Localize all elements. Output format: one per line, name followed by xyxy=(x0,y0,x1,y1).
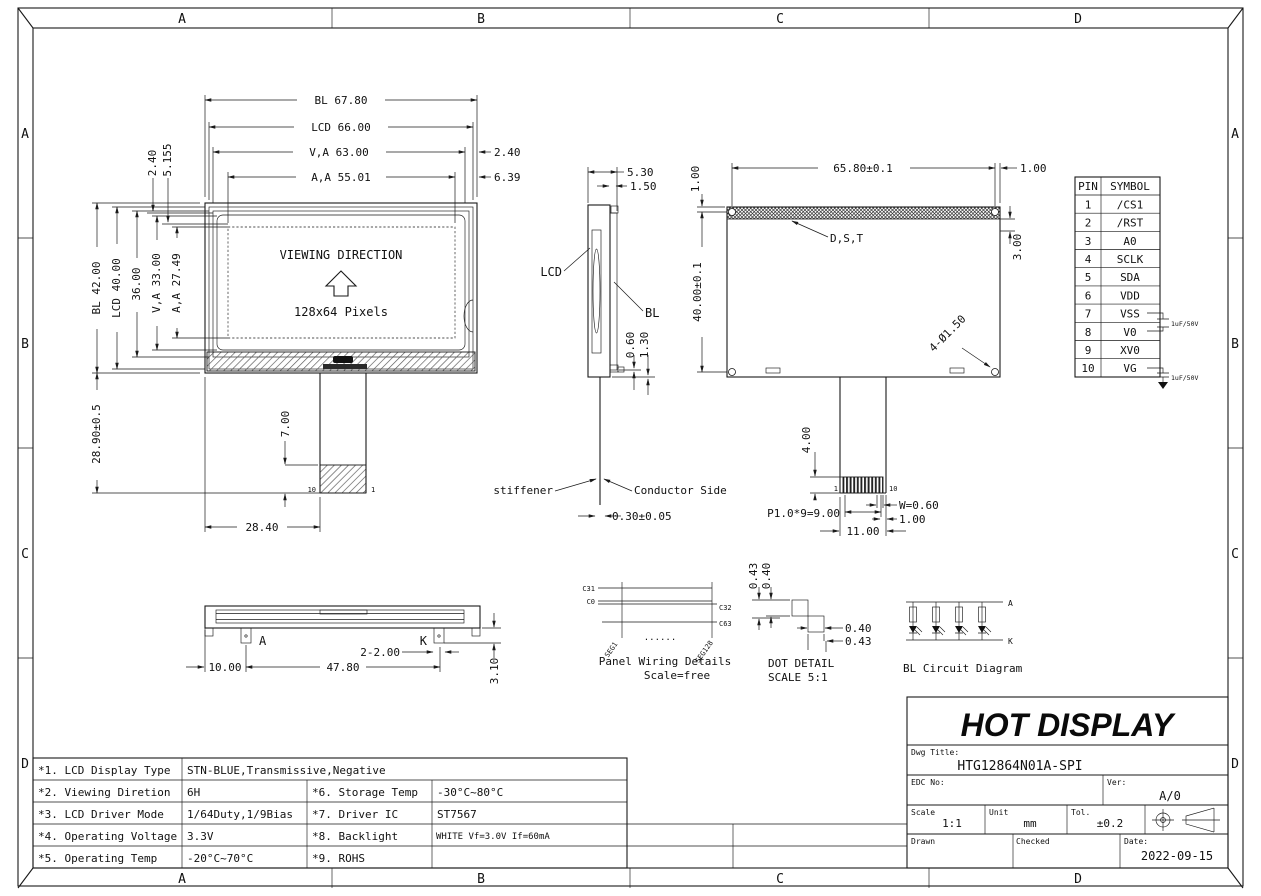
anode-label: A xyxy=(259,634,267,648)
svg-text:6: 6 xyxy=(1085,289,1092,302)
svg-text:VG: VG xyxy=(1123,362,1136,375)
dim-lcd-height: LCD 40.00 xyxy=(110,258,123,318)
tol-value: ±0.2 xyxy=(1097,817,1124,830)
dim-lcd-width: LCD 66.00 xyxy=(311,121,371,134)
company-logo-text: HOT DISPLAY xyxy=(961,707,1176,743)
dim-150: 1.50 xyxy=(630,180,657,193)
lcd-callout: LCD xyxy=(540,265,562,279)
border-letter-right-b: B xyxy=(1231,337,1239,352)
bl-circuit-title: BL Circuit Diagram xyxy=(903,662,1023,675)
svg-text:*3. LCD Driver Mode: *3. LCD Driver Mode xyxy=(38,808,164,821)
drawing-sheet: A B C D A B C D A B C D A B C D VIEWING … xyxy=(0,0,1261,896)
pin-table-header-symbol: SYMBOL xyxy=(1110,180,1150,193)
scale-label: Scale xyxy=(911,808,935,817)
wiring-c32-label: C32 xyxy=(719,604,732,612)
dim-w060: W=0.60 xyxy=(899,499,939,512)
svg-text:5: 5 xyxy=(1085,271,1092,284)
dim-4780: 47.80 xyxy=(326,661,359,674)
dst-callout: D,S,T xyxy=(830,232,863,245)
dwg-title-value: HTG12864N01A-SPI xyxy=(957,759,1082,774)
front-view: VIEWING DIRECTION 128x64 Pixels 10 1 BL … xyxy=(90,93,521,534)
svg-text:3.3V: 3.3V xyxy=(187,830,214,843)
bl-anode-label: A xyxy=(1008,599,1013,608)
svg-text:10: 10 xyxy=(1081,362,1094,375)
border-letter-left-c: C xyxy=(21,547,29,562)
dim-6580: 65.80±0.1 xyxy=(833,162,893,175)
dim-bl-width: BL 67.80 xyxy=(315,94,368,107)
dim-300: 3.00 xyxy=(1011,234,1024,261)
svg-text:*1. LCD Display Type: *1. LCD Display Type xyxy=(38,764,170,777)
border-letter-bottom-a: A xyxy=(178,872,186,887)
border-letter-top-d: D xyxy=(1074,12,1082,27)
dim-4000: 40.00±0.1 xyxy=(691,262,704,322)
svg-text:WHITE Vf=3.0V If=60mA: WHITE Vf=3.0V If=60mA xyxy=(436,832,550,842)
dim-va-width: V,A 63.00 xyxy=(309,146,369,159)
engineering-drawing: A B C D A B C D A B C D A B C D VIEWING … xyxy=(0,0,1261,896)
dim-2200: 2-2.00 xyxy=(360,646,400,659)
panel-wiring-scale: Scale=free xyxy=(644,669,710,682)
dim-100-top-right: 1.00 xyxy=(1020,162,1047,175)
pixels-label: 128x64 Pixels xyxy=(294,305,388,319)
pin-table: PIN SYMBOL 1/CS1 2/RST 3A0 4SCLK 5SDA 6V… xyxy=(1075,177,1198,389)
dim-240-right: 2.40 xyxy=(494,146,521,159)
svg-text:*2. Viewing Diretion: *2. Viewing Diretion xyxy=(38,786,170,799)
border-letter-left-d: D xyxy=(21,757,29,772)
dim-5155: 5.155 xyxy=(161,143,174,176)
sheet-frame: A B C D A B C D A B C D A B C D xyxy=(18,8,1243,888)
unit-value: mm xyxy=(1023,817,1037,830)
svg-text:/CS1: /CS1 xyxy=(1117,199,1144,212)
dim-530: 5.30 xyxy=(627,166,654,179)
side-view: 5.30 1.50 LCD BL 0.60 1.30 stiffener Con… xyxy=(493,166,726,523)
border-letter-top-a: A xyxy=(178,12,186,27)
border-letter-right-c: C xyxy=(1231,547,1239,562)
svg-text:VSS: VSS xyxy=(1120,308,1140,321)
fpc-pin1-label: 1 xyxy=(371,486,375,494)
dim-2890: 28.90±0.5 xyxy=(90,404,103,464)
dim-1100: 11.00 xyxy=(846,525,879,538)
conductor-side-callout: Conductor Side xyxy=(634,484,727,497)
unit-label: Unit xyxy=(989,808,1008,817)
stiffener-callout: stiffener xyxy=(493,484,553,497)
rear-pin10-label: 10 xyxy=(889,485,897,493)
dim-130: 1.30 xyxy=(638,332,651,359)
border-letter-right-a: A xyxy=(1231,127,1239,142)
dot-dim-040-h: 0.40 xyxy=(845,622,872,635)
wiring-c31-label: C31 xyxy=(582,585,595,593)
border-letter-left-b: B xyxy=(21,337,29,352)
svg-text:*6. Storage Temp: *6. Storage Temp xyxy=(312,786,418,799)
ver-label: Ver: xyxy=(1107,778,1126,787)
svg-text:1uF/50V: 1uF/50V xyxy=(1171,320,1198,328)
svg-text:VDD: VDD xyxy=(1120,289,1140,302)
wiring-c0-label: C0 xyxy=(587,598,595,606)
dot-detail: 0.43 0.40 0.40 0.43 DOT DETAIL SCALE 5:1 xyxy=(747,563,872,684)
cathode-label: K xyxy=(420,634,428,648)
date-label: Date: xyxy=(1124,837,1148,846)
ver-value: A/0 xyxy=(1159,789,1181,803)
border-letter-right-d: D xyxy=(1231,757,1239,772)
dim-310: 3.10 xyxy=(488,658,501,685)
dot-dim-043-v: 0.43 xyxy=(747,563,760,590)
svg-text:1: 1 xyxy=(1085,199,1092,212)
rear-pin1-label: 1 xyxy=(834,485,838,493)
svg-text:-30°C~80°C: -30°C~80°C xyxy=(437,786,503,799)
svg-text:1/64Duty,1/9Bias: 1/64Duty,1/9Bias xyxy=(187,808,293,821)
svg-text:SDA: SDA xyxy=(1120,271,1140,284)
pin-table-rows: 1/CS1 2/RST 3A0 4SCLK 5SDA 6VDD 7VSS 8V0… xyxy=(1081,199,1143,376)
svg-text:-20°C~70°C: -20°C~70°C xyxy=(187,852,253,865)
viewing-direction-arrow-icon xyxy=(326,271,356,296)
panel-wiring-details: C31 C0 C32 C63 SEG1 SEG128 ...... Panel … xyxy=(582,582,731,682)
pin-table-header-pin: PIN xyxy=(1078,180,1098,193)
bl-cathode-label: K xyxy=(1008,637,1013,646)
dot-dim-040-v: 0.40 xyxy=(760,563,773,590)
edc-no-label: EDC No: xyxy=(911,778,945,787)
svg-text:4: 4 xyxy=(1085,253,1092,266)
spec-row-4: *4. Operating Voltage 3.3V *8. Backlight… xyxy=(38,830,550,843)
capacitor-vg: 1uF/50V xyxy=(1147,368,1198,389)
spec-table: *1. LCD Display Type STN-BLUE,Transmissi… xyxy=(33,758,907,868)
dot-detail-scale: SCALE 5:1 xyxy=(768,671,828,684)
dim-2840: 28.40 xyxy=(245,521,278,534)
dim-aa-height: A,A 27.49 xyxy=(170,253,183,313)
dim-pitch: P1.0*9=9.00 xyxy=(767,507,840,520)
svg-text:/RST: /RST xyxy=(1117,217,1144,230)
svg-text:*5. Operating Temp: *5. Operating Temp xyxy=(38,852,157,865)
svg-text:*4. Operating Voltage: *4. Operating Voltage xyxy=(38,830,177,843)
dim-va-height: V,A 33.00 xyxy=(150,253,163,313)
scale-value: 1:1 xyxy=(942,817,962,830)
svg-text:3: 3 xyxy=(1085,235,1092,248)
border-letter-top-b: B xyxy=(477,12,485,27)
tol-label: Tol. xyxy=(1071,808,1090,817)
dim-240-top: 2.40 xyxy=(146,150,159,177)
svg-text:*8. Backlight: *8. Backlight xyxy=(312,830,398,843)
wiring-c63-label: C63 xyxy=(719,620,732,628)
dim-060: 0.60 xyxy=(624,332,637,359)
viewing-direction-label: VIEWING DIRECTION xyxy=(280,248,403,262)
svg-text:8: 8 xyxy=(1085,326,1092,339)
bottom-view: A K 10.00 47.80 2-2.00 3.10 xyxy=(186,606,501,684)
date-value: 2022-09-15 xyxy=(1141,849,1213,863)
dim-100-bottom: 1.00 xyxy=(899,513,926,526)
dim-1000: 10.00 xyxy=(208,661,241,674)
bl-circuit-diagram: A K BL Circuit Diagram xyxy=(903,599,1023,675)
svg-text:ST7567: ST7567 xyxy=(437,808,477,821)
bl-callout: BL xyxy=(645,306,659,320)
dot-dim-043-h: 0.43 xyxy=(845,635,872,648)
dim-aa-width: A,A 55.01 xyxy=(311,171,371,184)
border-letter-left-a: A xyxy=(21,127,29,142)
svg-text:2: 2 xyxy=(1085,217,1092,230)
border-letter-bottom-d: D xyxy=(1074,872,1082,887)
spec-row-3: *3. LCD Driver Mode 1/64Duty,1/9Bias *7.… xyxy=(38,808,477,821)
svg-text:*9. ROHS: *9. ROHS xyxy=(312,852,365,865)
svg-text:SCLK: SCLK xyxy=(1117,253,1144,266)
dim-700: 7.00 xyxy=(279,411,292,438)
dim-639: 6.39 xyxy=(494,171,521,184)
drawn-label: Drawn xyxy=(911,837,935,846)
dim-36: 36.00 xyxy=(130,267,143,300)
dwg-title-label: Dwg Title: xyxy=(911,748,959,757)
dim-400: 4.00 xyxy=(800,427,813,454)
dot-detail-title: DOT DETAIL xyxy=(768,657,835,670)
svg-text:1uF/50V: 1uF/50V xyxy=(1171,374,1198,382)
svg-text:A0: A0 xyxy=(1123,235,1136,248)
dim-030: 0.30±0.05 xyxy=(612,510,672,523)
svg-text:STN-BLUE,Transmissive,Negative: STN-BLUE,Transmissive,Negative xyxy=(187,764,386,777)
title-block: HOT DISPLAY Dwg Title: HTG12864N01A-SPI … xyxy=(907,697,1228,868)
panel-wiring-title: Panel Wiring Details xyxy=(599,655,731,668)
spec-row-2: *2. Viewing Diretion 6H *6. Storage Temp… xyxy=(38,786,503,799)
border-letter-top-c: C xyxy=(776,12,784,27)
dim-bl-height: BL 42.00 xyxy=(90,262,103,315)
border-letter-bottom-c: C xyxy=(776,872,784,887)
svg-text:XV0: XV0 xyxy=(1120,344,1140,357)
led-branches xyxy=(909,602,991,640)
dim-100-top-left: 1.00 xyxy=(689,166,702,193)
projection-symbol-icon xyxy=(1152,808,1220,832)
svg-text:6H: 6H xyxy=(187,786,200,799)
checked-label: Checked xyxy=(1016,837,1050,846)
rear-view: D,S,T 4-Ø1.50 65.80±0.1 1.00 1.00 40.00±… xyxy=(689,161,1047,538)
svg-text:7: 7 xyxy=(1085,308,1092,321)
spec-row-5: *5. Operating Temp -20°C~70°C *9. ROHS xyxy=(38,852,365,865)
svg-text:9: 9 xyxy=(1085,344,1092,357)
svg-text:*7. Driver IC: *7. Driver IC xyxy=(312,808,398,821)
border-letter-bottom-b: B xyxy=(477,872,485,887)
wiring-dots: ...... xyxy=(644,633,677,643)
spec-row-1: *1. LCD Display Type STN-BLUE,Transmissi… xyxy=(38,764,386,777)
svg-text:V0: V0 xyxy=(1123,326,1136,339)
